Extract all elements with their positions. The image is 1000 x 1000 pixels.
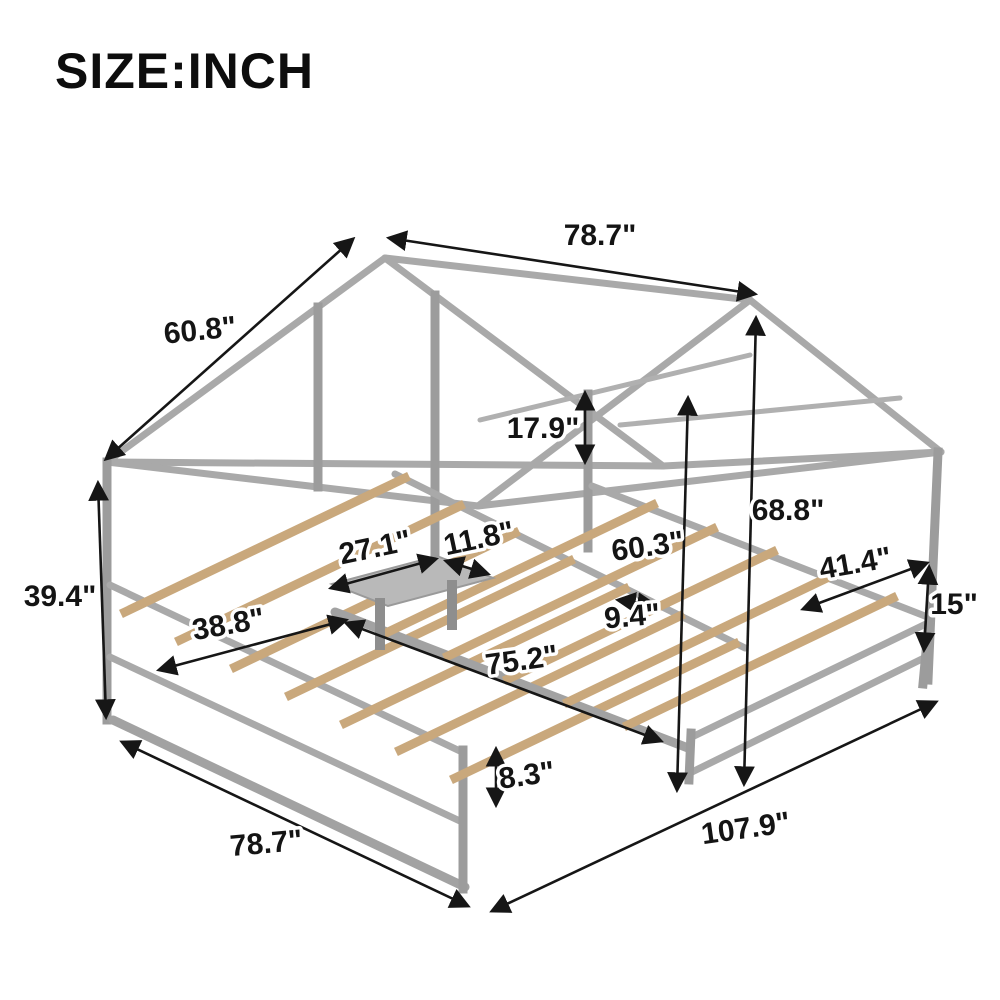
dim-label-footboard-height: 15" (930, 588, 978, 621)
gable2-left-slope (478, 300, 750, 506)
dim-label-top-length: 78.7" (564, 219, 637, 252)
dim-label-base-length: 78.7" (229, 824, 304, 863)
dim-label-gable-rail: 17.9" (507, 412, 580, 445)
dim-label-slat-height: 8.3" (497, 755, 557, 795)
dim-label-slat-gap: 9.4" (603, 598, 662, 636)
dim-label-bed2-length: 60.3" (609, 525, 686, 568)
dim-label-roof-slope: 60.8" (162, 310, 238, 350)
dim-label-table-width: 11.8" (441, 515, 517, 562)
gable1-left-slope (107, 258, 385, 462)
bed-dimension-diagram: SIZE:INCH (0, 0, 1000, 1000)
page-title: SIZE:INCH (55, 43, 314, 99)
bed2-foot-left-post (689, 733, 691, 780)
dimension-labels: 78.7" 60.8" 17.9" 68.8" 39.4" 27.1" 11.8… (24, 219, 978, 863)
purlin-rail (480, 355, 750, 420)
gable2-right-slope (750, 300, 941, 452)
dim-label-eave-height: 39.4" (24, 580, 97, 613)
collar-rail (620, 398, 900, 425)
dim-label-peak-height: 68.8" (752, 494, 825, 527)
rear-plate-rail (478, 452, 941, 506)
size-diagram-page: SIZE:INCH (0, 0, 1000, 1000)
dim-label-total-width: 107.9" (699, 806, 792, 851)
front-plate-rail (107, 462, 663, 466)
dim-label-bed1-headboard-width: 38.8" (190, 602, 267, 647)
